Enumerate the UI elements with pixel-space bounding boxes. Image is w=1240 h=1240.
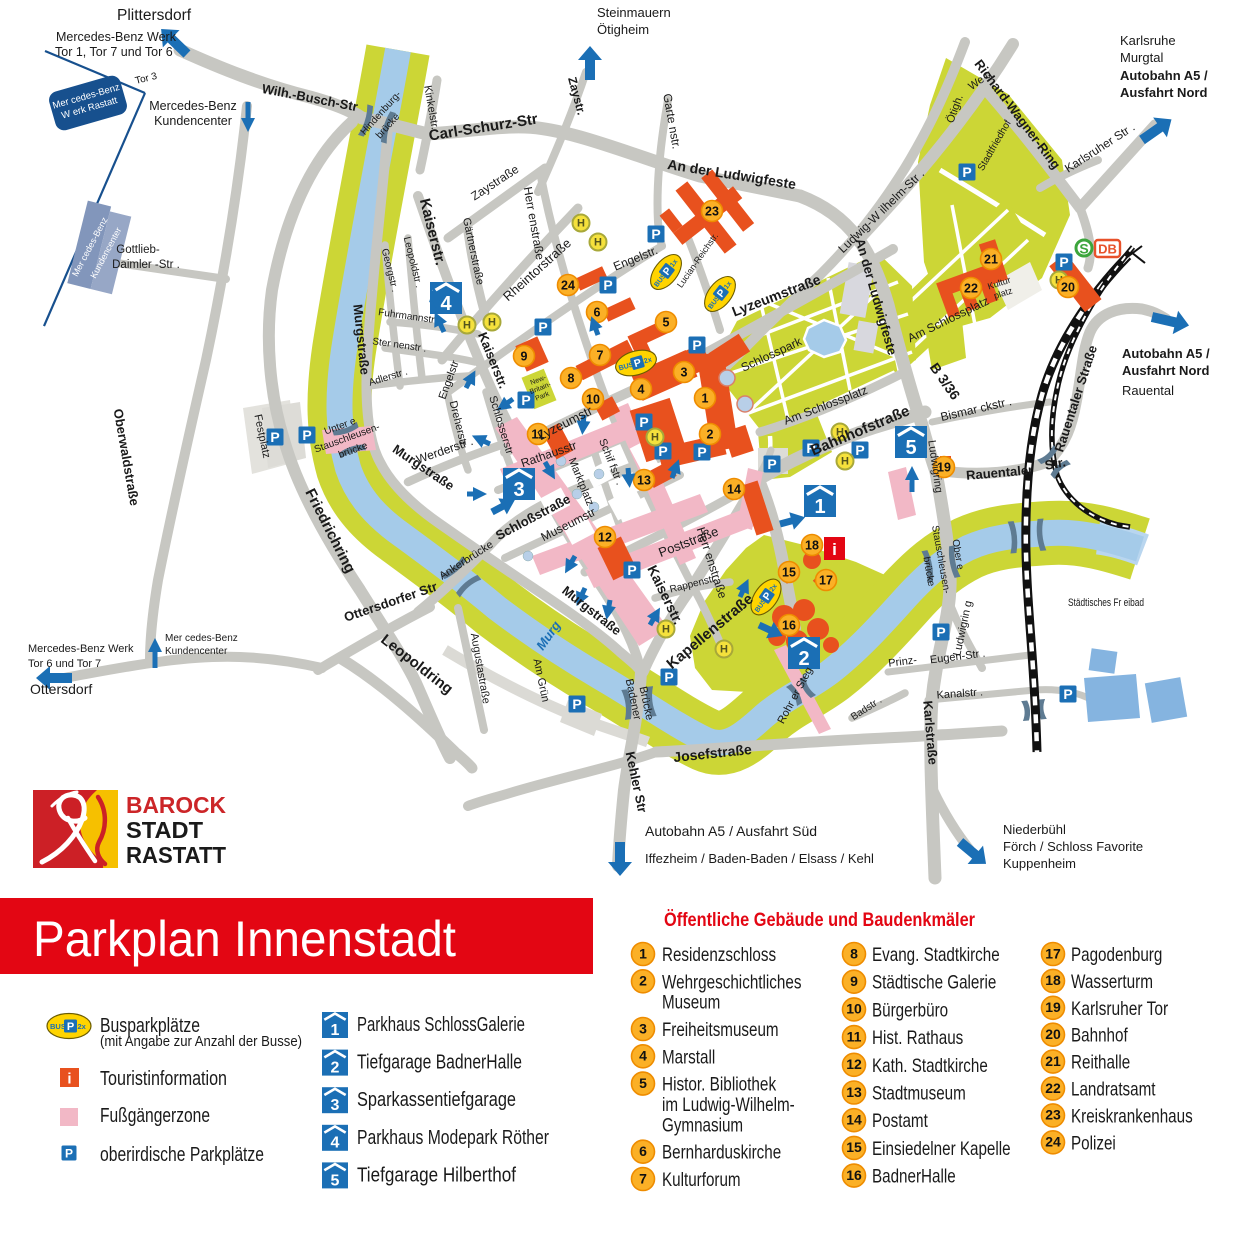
svg-text:Rauental: Rauental <box>1122 383 1174 398</box>
svg-text:H: H <box>594 237 602 249</box>
svg-text:Städtische Galerie: Städtische Galerie <box>872 972 996 994</box>
svg-text:Einsiedelner Kapelle: Einsiedelner Kapelle <box>872 1138 1011 1160</box>
svg-text:Landratsamt: Landratsamt <box>1071 1079 1156 1101</box>
svg-text:Kreiskrankenhaus: Kreiskrankenhaus <box>1071 1105 1193 1127</box>
svg-text:9: 9 <box>521 349 528 363</box>
svg-text:i: i <box>832 540 837 559</box>
svg-text:Freiheitsmuseum: Freiheitsmuseum <box>662 1019 779 1041</box>
svg-text:P: P <box>855 442 864 458</box>
svg-text:Tor 1, Tor 7 und Tor 6: Tor 1, Tor 7 und Tor 6 <box>55 45 173 59</box>
svg-text:Ausfahrt Nord: Ausfahrt Nord <box>1122 363 1209 378</box>
svg-text:Residenzschloss: Residenzschloss <box>662 944 776 966</box>
svg-text:12: 12 <box>598 530 612 544</box>
svg-text:7: 7 <box>639 1170 647 1186</box>
svg-text:STADT: STADT <box>126 817 203 843</box>
svg-text:13: 13 <box>637 473 651 487</box>
svg-text:P: P <box>1059 254 1068 270</box>
svg-text:im Ludwig-Wilhelm-: im Ludwig-Wilhelm- <box>662 1094 795 1116</box>
svg-text:P: P <box>627 562 636 578</box>
svg-text:2: 2 <box>707 427 714 441</box>
svg-text:3: 3 <box>331 1097 340 1114</box>
svg-text:10: 10 <box>846 1001 862 1017</box>
svg-text:5: 5 <box>663 315 670 329</box>
svg-text:P: P <box>936 624 945 640</box>
svg-text:12: 12 <box>846 1056 862 1072</box>
svg-text:P: P <box>658 443 667 459</box>
svg-text:18: 18 <box>805 538 819 552</box>
svg-text:Histor. Bibliothek: Histor. Bibliothek <box>662 1074 776 1096</box>
svg-text:DB: DB <box>1098 242 1117 257</box>
svg-text:P: P <box>639 414 648 430</box>
svg-text:H: H <box>662 624 670 636</box>
svg-text:23: 23 <box>705 204 719 218</box>
svg-text:17: 17 <box>1045 945 1061 961</box>
svg-text:1: 1 <box>814 496 825 518</box>
svg-text:9: 9 <box>850 973 858 989</box>
svg-text:P: P <box>538 319 547 335</box>
svg-text:Bahnhof: Bahnhof <box>1071 1025 1128 1047</box>
svg-text:1: 1 <box>639 945 647 961</box>
svg-text:oberirdische Parkplätze: oberirdische Parkplätze <box>100 1144 264 1166</box>
svg-text:22: 22 <box>1045 1080 1061 1096</box>
svg-text:Öffentliche Gebäude und Bauden: Öffentliche Gebäude und Baudenkmäler <box>664 910 976 931</box>
svg-text:Kath. Stadtkirche: Kath. Stadtkirche <box>872 1055 988 1077</box>
svg-text:Tor 6 und Tor 7: Tor 6 und Tor 7 <box>28 658 101 670</box>
svg-text:P: P <box>521 392 530 408</box>
svg-text:8: 8 <box>568 371 575 385</box>
svg-text:24: 24 <box>561 278 575 292</box>
svg-text:P: P <box>572 696 581 712</box>
svg-text:BUS: BUS <box>50 1022 66 1031</box>
svg-text:Kuppenheim: Kuppenheim <box>1003 856 1076 871</box>
svg-text:P: P <box>65 1146 73 1160</box>
svg-text:Parkplan Innenstadt: Parkplan Innenstadt <box>33 911 456 967</box>
svg-text:3: 3 <box>681 365 688 379</box>
svg-text:15: 15 <box>846 1139 862 1155</box>
svg-text:Murgtal: Murgtal <box>1120 50 1163 65</box>
svg-text:7: 7 <box>597 348 604 362</box>
svg-text:P: P <box>270 429 279 445</box>
svg-text:17: 17 <box>819 573 833 587</box>
svg-text:Steinmauern: Steinmauern <box>597 5 671 20</box>
svg-text:Parkhaus Modepark Röther: Parkhaus Modepark Röther <box>357 1127 549 1149</box>
svg-text:6: 6 <box>594 305 601 319</box>
svg-text:Gymnasium: Gymnasium <box>662 1114 743 1136</box>
svg-text:Städtisches Fr eibad: Städtisches Fr eibad <box>1068 597 1144 609</box>
svg-text:Stadtmuseum: Stadtmuseum <box>872 1083 966 1105</box>
svg-text:P: P <box>697 444 706 460</box>
svg-text:6: 6 <box>639 1143 647 1159</box>
svg-text:4: 4 <box>639 1048 647 1064</box>
svg-text:20: 20 <box>1061 280 1075 294</box>
svg-text:19: 19 <box>1045 999 1061 1015</box>
svg-text:1: 1 <box>331 1022 340 1039</box>
svg-text:2: 2 <box>639 973 647 989</box>
svg-text:2: 2 <box>331 1059 340 1076</box>
svg-text:Tiefgarage BadnerHalle: Tiefgarage BadnerHalle <box>357 1052 522 1074</box>
svg-text:H: H <box>577 218 585 230</box>
svg-text:H: H <box>463 320 471 332</box>
svg-text:4: 4 <box>440 293 452 315</box>
svg-text:S: S <box>1079 241 1088 257</box>
svg-text:15: 15 <box>782 565 796 579</box>
svg-text:BAROCK: BAROCK <box>126 792 226 818</box>
svg-text:23: 23 <box>1045 1107 1061 1123</box>
svg-text:Parkhaus SchlossGalerie: Parkhaus SchlossGalerie <box>357 1014 525 1036</box>
svg-text:Wasserturm: Wasserturm <box>1071 971 1153 993</box>
svg-text:Kulturforum: Kulturforum <box>662 1169 741 1191</box>
svg-text:Förch / Schloss Favorite: Förch / Schloss Favorite <box>1003 839 1143 854</box>
svg-text:Mer cedes-Benz: Mer cedes-Benz <box>165 633 238 644</box>
svg-text:Touristinformation: Touristinformation <box>100 1068 227 1090</box>
svg-text:Ötigheim: Ötigheim <box>597 22 649 37</box>
svg-text:Niederbühl: Niederbühl <box>1003 822 1066 837</box>
svg-text:P: P <box>962 164 971 180</box>
svg-text:Reithalle: Reithalle <box>1071 1052 1130 1074</box>
svg-text:1: 1 <box>702 391 709 405</box>
svg-text:Postamt: Postamt <box>872 1110 928 1132</box>
svg-text:Ausfahrt Nord: Ausfahrt Nord <box>1120 85 1207 100</box>
svg-text:5: 5 <box>639 1075 647 1091</box>
svg-text:P: P <box>651 226 660 242</box>
svg-text:Tiefgarage Hilberthof: Tiefgarage Hilberthof <box>357 1164 516 1186</box>
svg-text:P: P <box>603 277 612 293</box>
svg-text:P: P <box>67 1021 74 1033</box>
svg-text:Hist. Rathaus: Hist. Rathaus <box>872 1027 963 1049</box>
svg-text:Evang. Stadtkirche: Evang. Stadtkirche <box>872 944 1000 966</box>
svg-text:Gottlieb-: Gottlieb- <box>116 244 160 256</box>
svg-text:2x: 2x <box>78 1022 87 1031</box>
svg-text:Karlsruhe: Karlsruhe <box>1120 33 1176 48</box>
svg-text:5: 5 <box>331 1172 340 1189</box>
svg-text:24: 24 <box>1045 1134 1061 1150</box>
svg-text:P: P <box>302 427 311 443</box>
svg-text:Mercedes-Benz: Mercedes-Benz <box>149 99 237 113</box>
svg-text:Iffezheim / Baden-Baden / Elsa: Iffezheim / Baden-Baden / Elsass / Kehl <box>645 851 874 866</box>
svg-text:Daimler -Str .: Daimler -Str . <box>112 259 180 271</box>
svg-text:Polizei: Polizei <box>1071 1132 1116 1154</box>
svg-text:14: 14 <box>846 1112 862 1128</box>
svg-text:H: H <box>841 456 849 468</box>
svg-text:11: 11 <box>847 1028 862 1044</box>
svg-text:Pagodenburg: Pagodenburg <box>1071 944 1162 966</box>
svg-text:Mercedes-Benz Werk: Mercedes-Benz Werk <box>56 30 177 44</box>
svg-text:16: 16 <box>782 618 796 632</box>
svg-text:H: H <box>488 317 496 329</box>
svg-text:4: 4 <box>331 1135 340 1152</box>
svg-text:20: 20 <box>1045 1026 1061 1042</box>
svg-text:Autobahn A5 /: Autobahn A5 / <box>1122 346 1210 361</box>
svg-text:Fußgängerzone: Fußgängerzone <box>100 1105 210 1127</box>
svg-text:P: P <box>767 456 776 472</box>
svg-text:Autobahn A5 /: Autobahn A5 / <box>1120 68 1208 83</box>
svg-text:i: i <box>67 1071 71 1088</box>
svg-text:H: H <box>720 644 728 656</box>
svg-text:18: 18 <box>1045 972 1061 988</box>
svg-text:H: H <box>651 432 659 444</box>
svg-text:16: 16 <box>846 1167 862 1183</box>
svg-text:3: 3 <box>513 479 524 501</box>
svg-text:14: 14 <box>727 482 741 496</box>
svg-text:Autobahn A5 / Ausfahrt Süd: Autobahn A5 / Ausfahrt Süd <box>645 823 817 839</box>
svg-text:RASTATT: RASTATT <box>126 842 226 868</box>
svg-text:Karlsruher Tor: Karlsruher Tor <box>1071 998 1169 1020</box>
svg-text:BadnerHalle: BadnerHalle <box>872 1166 956 1188</box>
svg-text:Bürgerbüro: Bürgerbüro <box>872 999 948 1021</box>
svg-text:13: 13 <box>846 1084 862 1100</box>
svg-text:Kundencenter: Kundencenter <box>154 114 232 128</box>
svg-text:Mercedes-Benz Werk: Mercedes-Benz Werk <box>28 643 134 655</box>
svg-text:4: 4 <box>638 382 645 396</box>
svg-text:Wehrgeschichtliches: Wehrgeschichtliches <box>662 971 802 993</box>
svg-text:P: P <box>1063 686 1072 702</box>
svg-text:P: P <box>692 337 701 353</box>
svg-text:8: 8 <box>850 945 858 961</box>
svg-text:3: 3 <box>639 1020 647 1036</box>
svg-text:21: 21 <box>1045 1053 1061 1069</box>
svg-text:21: 21 <box>984 252 998 266</box>
svg-text:22: 22 <box>964 281 978 295</box>
svg-text:(mit Angabe zur Anzahl der Bus: (mit Angabe zur Anzahl der Busse) <box>100 1034 302 1050</box>
svg-text:Marstall: Marstall <box>662 1046 715 1068</box>
svg-text:Ottersdorf: Ottersdorf <box>30 681 92 697</box>
svg-text:Kundencenter: Kundencenter <box>165 646 228 657</box>
svg-text:Sparkassentiefgarage: Sparkassentiefgarage <box>357 1089 516 1111</box>
svg-text:Bernharduskirche: Bernharduskirche <box>662 1142 781 1164</box>
svg-text:Museum: Museum <box>662 992 720 1014</box>
svg-text:Plittersdorf: Plittersdorf <box>117 7 192 24</box>
svg-text:5: 5 <box>905 437 916 459</box>
